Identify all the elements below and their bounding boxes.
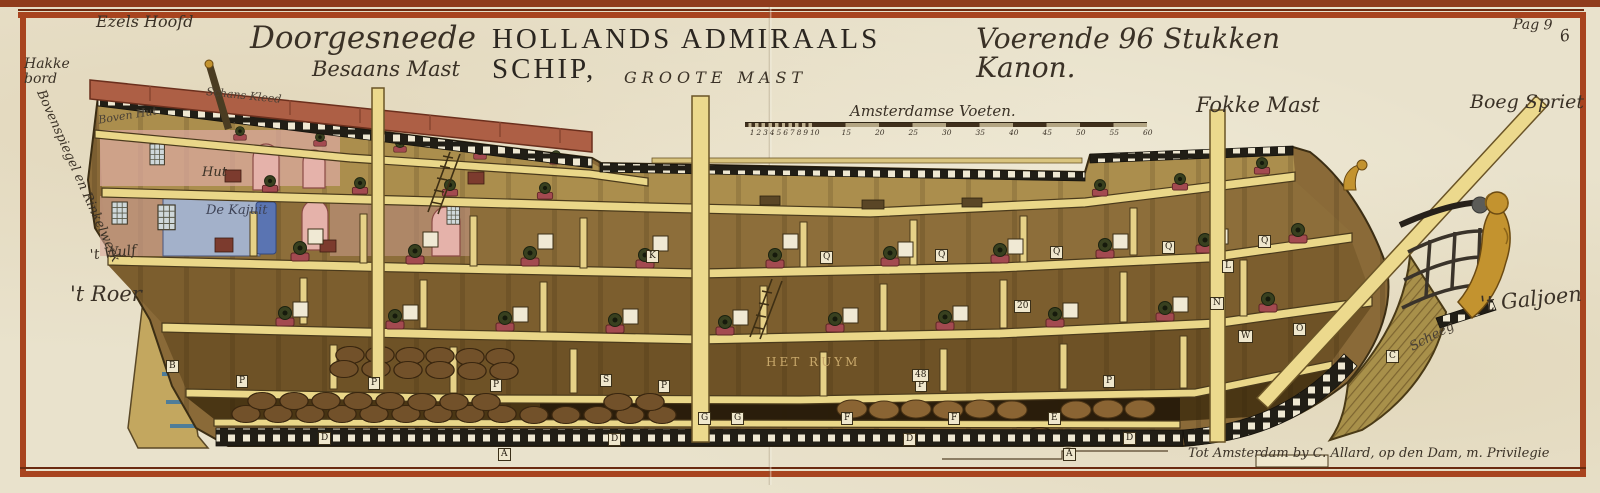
- scale-tick-label: 6: [783, 128, 788, 137]
- scale-tick-label: 40: [1009, 128, 1019, 137]
- scale-tick-label: 55: [1110, 128, 1120, 137]
- scale-tick-label: 2: [756, 128, 761, 137]
- label-hut: Hut: [202, 166, 227, 180]
- reference-letter: F: [841, 412, 853, 425]
- reference-letter: D: [318, 432, 331, 445]
- reference-letter: Q: [820, 251, 833, 264]
- stern-window: [112, 202, 127, 224]
- scale-bar: Amsterdamse Voeten. 12345678910152025303…: [745, 102, 1165, 138]
- stern-window: [150, 144, 164, 165]
- reference-letter: F: [948, 412, 960, 425]
- reference-letter: B: [166, 360, 179, 373]
- reference-letter: P: [490, 379, 502, 392]
- reference-letter: K: [646, 250, 659, 263]
- scale-tick-label: 10: [810, 128, 820, 137]
- reference-letter: P: [236, 375, 248, 388]
- imprint: Tot Amsterdam by C. Allard, op den Dam, …: [1188, 447, 1550, 461]
- reference-letter: P: [658, 380, 670, 393]
- fore-mast: [1210, 110, 1225, 442]
- reference-letter: 20: [1014, 300, 1031, 313]
- label-het-ruym: HET RUYM: [766, 356, 860, 369]
- label-boeg-spriet: Boeg Spriet: [1470, 93, 1584, 113]
- stern-window: [158, 205, 175, 230]
- label-t-roer: 't Roer: [70, 283, 142, 305]
- label-de-kajuit: De Kajuit: [206, 204, 268, 218]
- scale-bar-title: Amsterdamse Voeten.: [850, 102, 1016, 120]
- scale-tick-label: 25: [909, 128, 919, 137]
- label-besaans-mast: Besaans Mast: [312, 58, 460, 80]
- main-mast: [692, 96, 709, 442]
- reference-letter: L: [1222, 260, 1234, 273]
- page-mark: Pag 9: [1513, 18, 1553, 33]
- reference-letter: W: [1238, 330, 1253, 343]
- reference-letter: N: [1210, 297, 1224, 310]
- stowed-spars: [652, 158, 1082, 163]
- reference-letter: G: [698, 412, 711, 425]
- engraved-plate: Doorgesneede HOLLANDS ADMIRAALS SCHIP, V…: [0, 0, 1600, 493]
- scale-tick-label: 35: [976, 128, 986, 137]
- reference-letter: A: [498, 448, 511, 461]
- scale-bar-rule: [745, 122, 1147, 127]
- reference-letter: S: [600, 374, 612, 387]
- reference-letter: Q: [1050, 246, 1063, 259]
- label-hakkebord: Hakke bord: [24, 57, 70, 86]
- scale-tick-label: 4: [770, 128, 775, 137]
- reference-letter: Q: [1162, 241, 1175, 254]
- reference-letter: D: [1123, 432, 1136, 445]
- title-script-lead: Doorgesneede: [250, 22, 476, 55]
- scale-tick-label: 30: [942, 128, 952, 137]
- scale-tick-label: 9: [803, 128, 808, 137]
- reference-letter: D: [608, 433, 621, 446]
- mizzen-mast: [372, 88, 384, 390]
- stern-window: [447, 206, 460, 224]
- reference-letter: C: [1386, 350, 1399, 363]
- reference-letter: Q: [1258, 235, 1271, 248]
- reference-letter: D: [903, 433, 916, 446]
- reference-letter: P: [368, 377, 380, 390]
- label-ezels-hoofd: Ezels Hoofd: [96, 14, 193, 31]
- scale-tick-label: 60: [1143, 128, 1153, 137]
- scale-tick-label: 5: [777, 128, 782, 137]
- scale-tick-label: 15: [842, 128, 852, 137]
- scale-tick-label: 8: [797, 128, 802, 137]
- scale-tick-label: 1: [750, 128, 755, 137]
- scale-tick-label: 3: [763, 128, 768, 137]
- reference-letter: O: [1293, 323, 1306, 336]
- scale-tick-label: 20: [875, 128, 885, 137]
- label-groote-mast: GROOTE MAST: [624, 70, 807, 87]
- scale-tick-label: 45: [1043, 128, 1053, 137]
- draught-marks: [942, 451, 1168, 459]
- reference-letter: Q: [935, 249, 948, 262]
- reference-letter: A: [1063, 448, 1076, 461]
- reference-letter: G: [731, 412, 744, 425]
- title-script-tail: Voerende 96 Stukken Kanon.: [976, 24, 1360, 83]
- reference-letter: E: [1048, 412, 1061, 425]
- reference-letter: 48: [912, 369, 929, 382]
- scale-tick-label: 7: [790, 128, 795, 137]
- reference-letter: P: [1103, 375, 1115, 388]
- label-fokke-mast: Fokke Mast: [1196, 94, 1320, 116]
- scale-tick-label: 50: [1076, 128, 1086, 137]
